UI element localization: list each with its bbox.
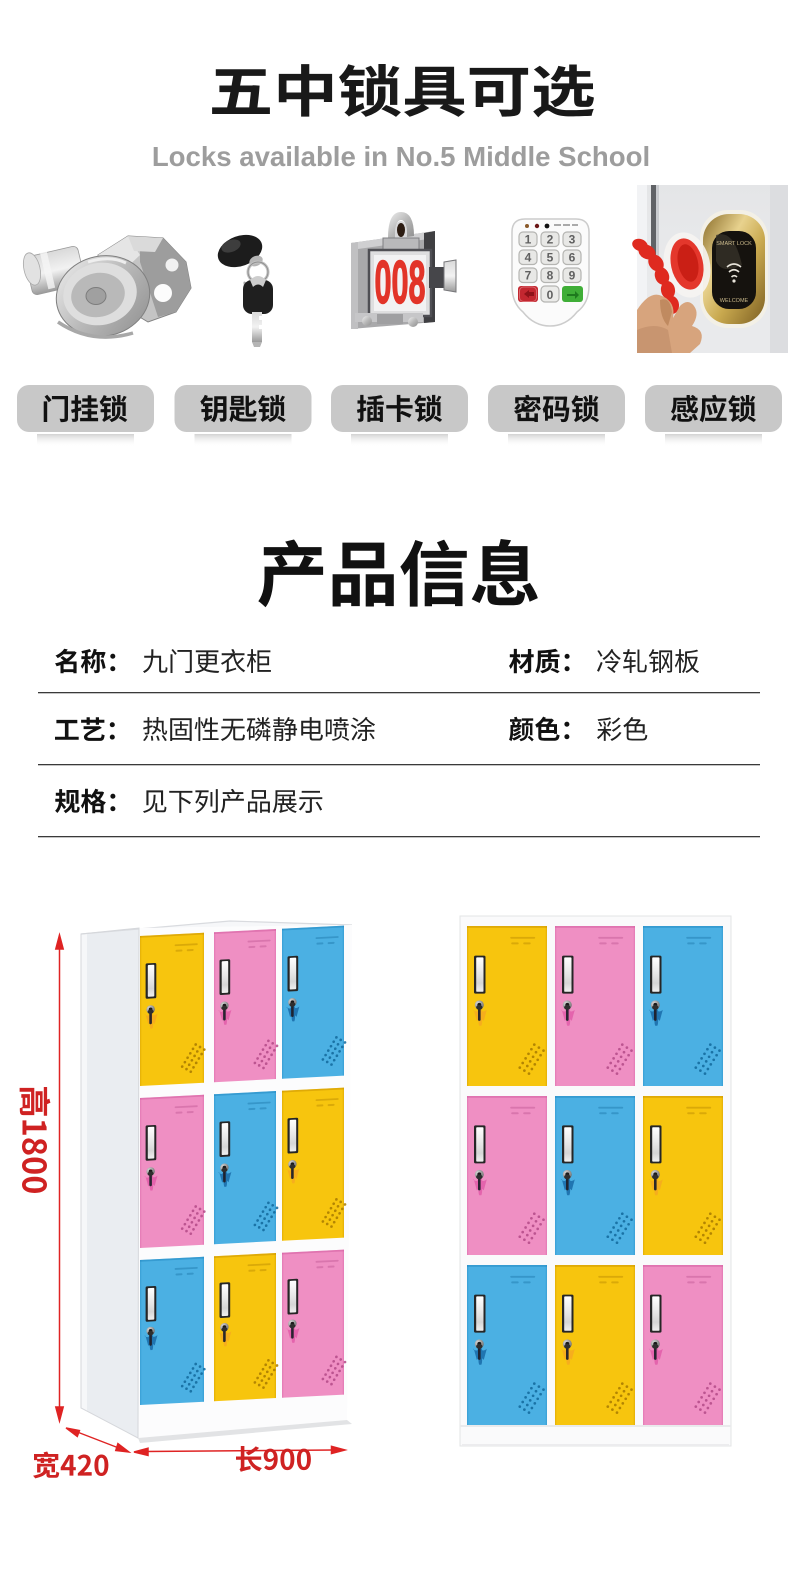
svg-text:2: 2 [547, 233, 554, 247]
svg-text:0: 0 [547, 288, 554, 302]
svg-text:4: 4 [525, 251, 532, 265]
svg-text:9: 9 [569, 269, 576, 283]
svg-text:SMART LOCK: SMART LOCK [716, 241, 752, 247]
svg-text:7: 7 [525, 269, 532, 283]
svg-text:1: 1 [525, 233, 532, 247]
svg-text:3: 3 [569, 233, 576, 247]
svg-text:8: 8 [547, 269, 554, 283]
svg-text:WELCOME: WELCOME [720, 298, 749, 304]
svg-text:008: 008 [374, 250, 425, 317]
svg-text:5: 5 [547, 251, 554, 265]
svg-text:6: 6 [569, 251, 576, 265]
svg-text:Locks available in No.5 Middle: Locks available in No.5 Middle School [152, 141, 650, 172]
